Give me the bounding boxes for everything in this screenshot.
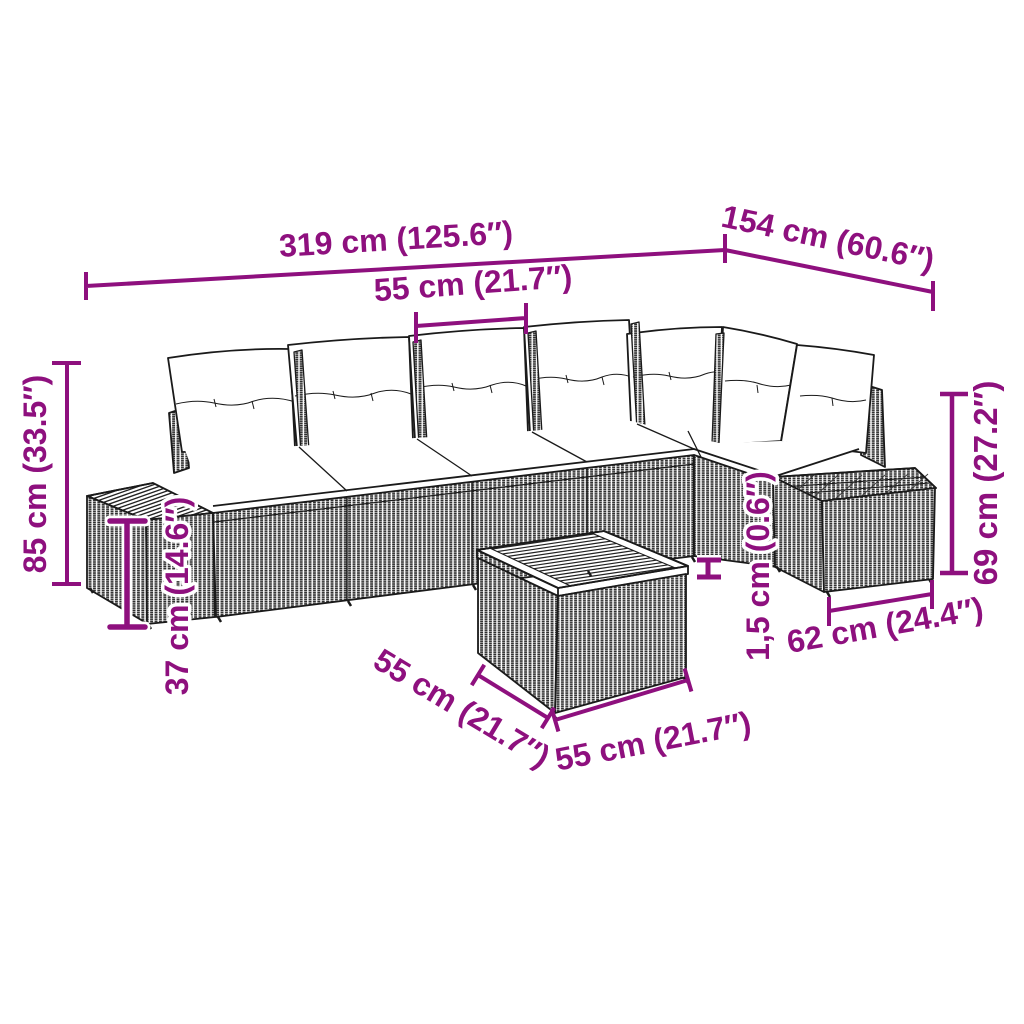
- svg-text:1,5 cm (0.6″): 1,5 cm (0.6″): [740, 471, 776, 661]
- svg-text:85 cm (33.5″): 85 cm (33.5″): [17, 375, 53, 574]
- svg-text:69 cm (27.2″): 69 cm (27.2″): [967, 381, 1004, 586]
- svg-text:37 cm (14.6″): 37 cm (14.6″): [159, 497, 195, 696]
